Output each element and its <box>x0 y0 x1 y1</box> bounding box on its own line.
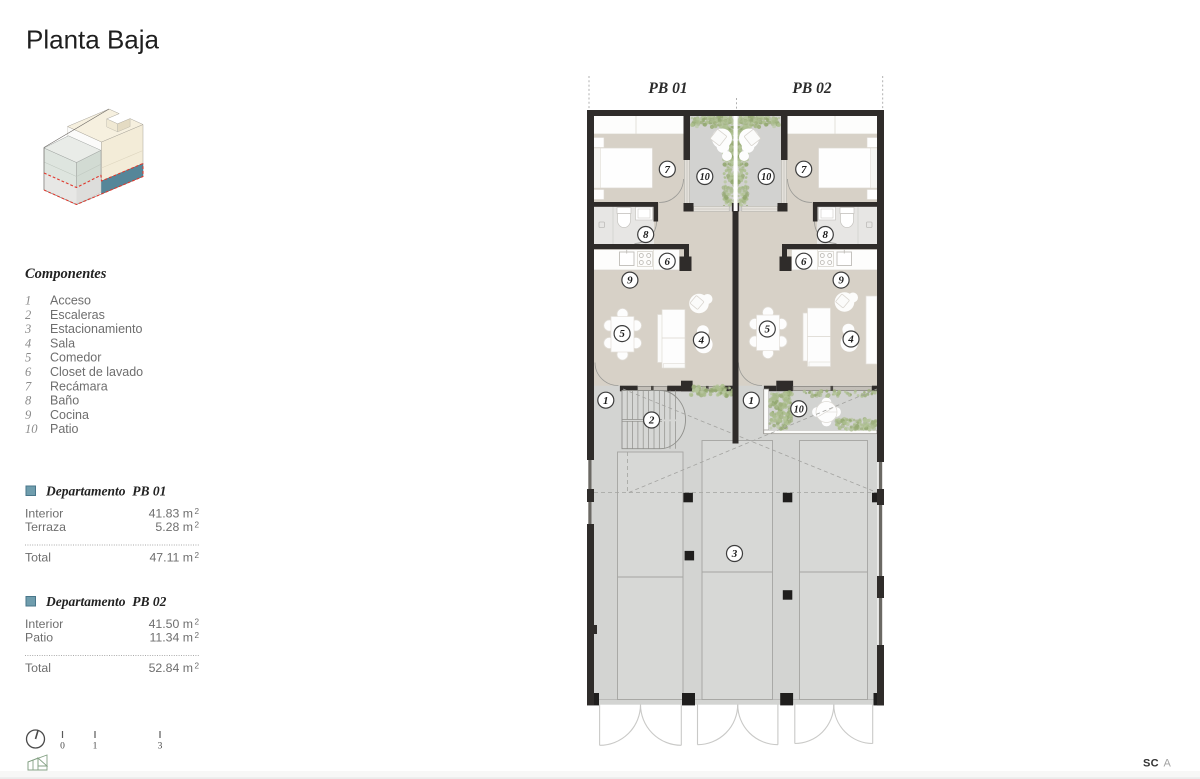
svg-text:3: 3 <box>24 322 31 336</box>
svg-text:7: 7 <box>801 164 807 176</box>
svg-text:6: 6 <box>664 256 670 268</box>
svg-text:2: 2 <box>195 521 200 530</box>
svg-text:3: 3 <box>158 742 163 752</box>
svg-text:PB 01: PB 01 <box>648 80 687 97</box>
svg-text:Interior: Interior <box>25 617 63 631</box>
svg-text:5: 5 <box>765 324 771 336</box>
svg-text:9: 9 <box>627 275 633 287</box>
svg-text:Recámara: Recámara <box>50 379 108 393</box>
svg-text:2: 2 <box>25 308 31 322</box>
svg-text:1: 1 <box>749 395 755 407</box>
svg-text:52.84 m: 52.84 m <box>149 661 193 675</box>
svg-text:4: 4 <box>847 334 854 346</box>
svg-text:4: 4 <box>698 335 705 347</box>
svg-text:Departamento PB 01: Departamento PB 01 <box>45 484 166 499</box>
svg-text:A: A <box>1164 758 1172 770</box>
svg-text:7: 7 <box>25 379 32 393</box>
svg-text:6: 6 <box>25 365 32 379</box>
svg-text:8: 8 <box>25 394 32 408</box>
svg-text:1: 1 <box>93 742 98 752</box>
svg-text:8: 8 <box>643 229 649 241</box>
svg-text:Baño: Baño <box>50 394 79 408</box>
svg-text:2: 2 <box>195 631 200 640</box>
svg-text:6: 6 <box>801 256 807 268</box>
svg-text:Componentes: Componentes <box>25 266 107 282</box>
svg-text:Planta Baja: Planta Baja <box>26 25 160 55</box>
svg-text:Patio: Patio <box>50 422 79 436</box>
svg-text:3: 3 <box>731 548 738 560</box>
svg-text:Total: Total <box>25 551 51 565</box>
svg-text:0: 0 <box>60 742 65 752</box>
svg-text:10: 10 <box>25 422 38 436</box>
svg-text:Cocina: Cocina <box>50 408 89 422</box>
svg-text:9: 9 <box>838 275 844 287</box>
svg-text:10: 10 <box>700 172 710 183</box>
svg-text:Comedor: Comedor <box>50 351 101 365</box>
svg-text:Total: Total <box>25 661 51 675</box>
svg-text:Patio: Patio <box>25 631 53 645</box>
svg-text:2: 2 <box>648 415 655 427</box>
svg-text:41.83 m: 41.83 m <box>149 507 193 521</box>
svg-text:Acceso: Acceso <box>50 294 91 308</box>
svg-text:1: 1 <box>603 395 609 407</box>
svg-text:Departamento PB 02: Departamento PB 02 <box>45 594 167 609</box>
svg-text:Closet de lavado: Closet de lavado <box>50 365 143 379</box>
svg-text:Estacionamiento: Estacionamiento <box>50 322 142 336</box>
svg-text:11.34 m: 11.34 m <box>149 631 193 645</box>
svg-text:8: 8 <box>823 229 829 241</box>
svg-text:2: 2 <box>195 551 200 560</box>
svg-text:10: 10 <box>794 404 804 415</box>
svg-text:2: 2 <box>195 507 200 516</box>
svg-text:10: 10 <box>761 172 771 183</box>
svg-text:5: 5 <box>619 328 625 340</box>
svg-text:1: 1 <box>25 294 31 308</box>
svg-text:5: 5 <box>25 351 31 365</box>
svg-text:47.11 m: 47.11 m <box>149 551 193 565</box>
svg-text:2: 2 <box>195 662 200 671</box>
svg-text:41.50 m: 41.50 m <box>149 617 193 631</box>
svg-text:Escaleras: Escaleras <box>50 308 105 322</box>
svg-text:SC: SC <box>1143 758 1159 770</box>
svg-text:5.28 m: 5.28 m <box>155 520 193 534</box>
svg-text:2: 2 <box>195 618 200 627</box>
svg-text:4: 4 <box>25 336 31 350</box>
svg-text:Terraza: Terraza <box>25 520 66 534</box>
svg-text:7: 7 <box>665 164 671 176</box>
svg-text:Sala: Sala <box>50 336 75 350</box>
svg-text:Interior: Interior <box>25 507 63 521</box>
svg-text:PB 02: PB 02 <box>792 80 831 97</box>
svg-text:9: 9 <box>25 408 32 422</box>
